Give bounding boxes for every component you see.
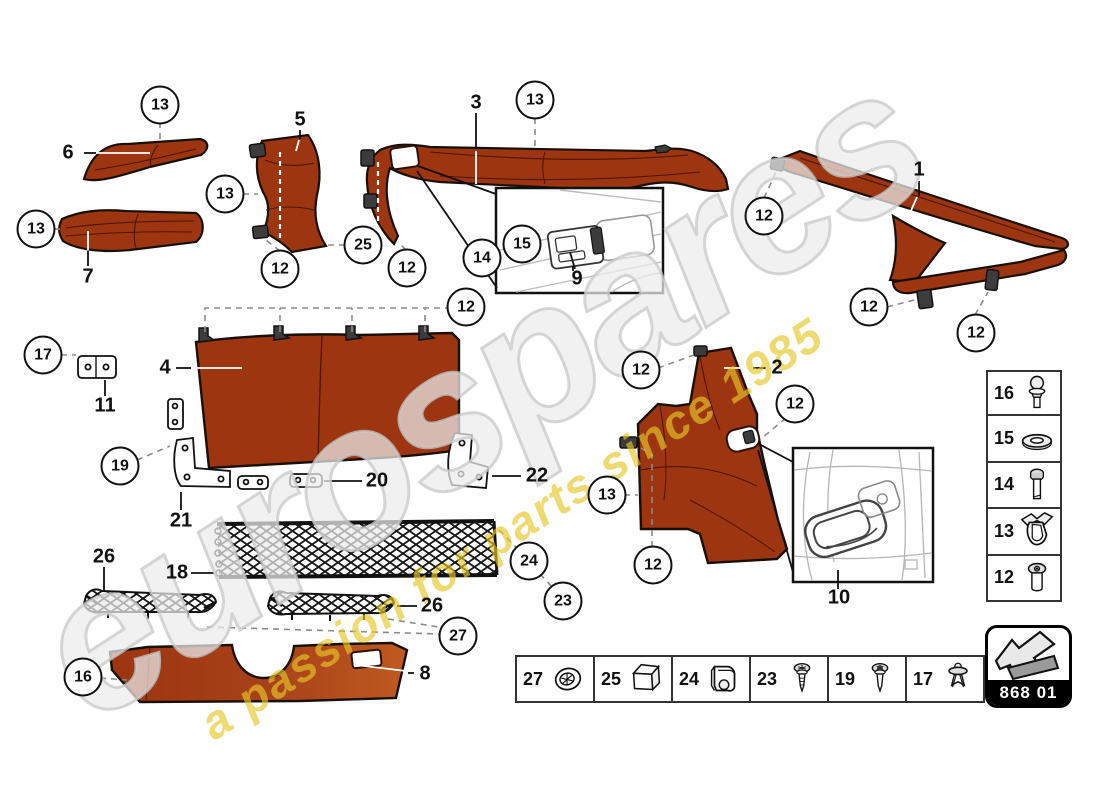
part-number-label: 20 [366, 470, 388, 493]
part-26-net-strip-left [84, 589, 216, 619]
part-5-pillar-trim [249, 135, 326, 252]
round-screw-icon [1014, 557, 1060, 599]
callout-circle: 13 [516, 81, 555, 120]
callout-circle: 27 [439, 617, 478, 656]
lamp-opening [390, 145, 420, 170]
callout-circle: 24 [510, 542, 549, 581]
callout-circle: 12 [447, 288, 486, 327]
part-number-label: 3 [470, 92, 481, 115]
part-26-net-strip-right [268, 591, 394, 621]
callout-circle: 15 [503, 225, 542, 264]
legend-number: 13 [988, 521, 1014, 542]
washer-icon [1014, 418, 1060, 460]
screw-icon [777, 657, 827, 701]
callout-circle: 12 [261, 250, 300, 289]
part-number-label: 21 [170, 510, 192, 533]
callout-circle: 13 [206, 175, 245, 214]
legend-cell-27: 27 [515, 655, 595, 703]
fastener-legend-horizontal: 27 25 24 [515, 655, 985, 703]
bracket-20a [238, 476, 268, 489]
legend-number: 24 [673, 669, 699, 690]
part-4-bulkhead-panel [196, 326, 459, 468]
part-7-roof-trim [59, 210, 203, 251]
legend-cell-25: 25 [593, 655, 673, 703]
legend-number: 16 [988, 383, 1014, 404]
push-rivet-icon [933, 657, 983, 701]
legend-number: 12 [988, 567, 1014, 588]
legend-number: 15 [988, 428, 1014, 449]
legend-cell-24: 24 [671, 655, 751, 703]
bracket-20b [290, 474, 322, 487]
callout-circle: 17 [24, 336, 63, 375]
callout-circle: 13 [141, 86, 180, 125]
part-group-code-badge: 868 01 [985, 625, 1072, 708]
group-code: 868 01 [988, 680, 1069, 705]
callout-circle: 12 [634, 546, 673, 585]
callout-circle: 14 [463, 239, 502, 278]
part-number-label: 9 [571, 268, 582, 291]
group-arrow-icon [988, 628, 1069, 683]
bracket-11 [78, 356, 116, 378]
bracket-22-corner [448, 433, 488, 488]
part-number-label: 22 [526, 465, 548, 488]
part-6-roof-trim [84, 139, 207, 180]
callout-circle: 19 [101, 447, 140, 486]
part-number-label: 5 [294, 109, 305, 132]
part-number-label: 26 [93, 546, 115, 569]
part-number-label: 7 [82, 266, 93, 289]
callout-circle: 16 [64, 658, 103, 697]
parts-diagram-page: eurospares a passion for parts since 198… [0, 0, 1100, 800]
callout-circle: 12 [850, 288, 889, 327]
callout-circle: 12 [957, 314, 996, 353]
legend-cell-13: 13 [986, 507, 1062, 555]
bolt-icon [1014, 464, 1060, 506]
inset-door-handle-detail [793, 448, 933, 589]
fastener-legend-vertical: 16 15 14 [986, 370, 1062, 602]
spring-clip-icon [1014, 510, 1060, 552]
screw-icon [855, 657, 905, 701]
clamp-bracket-icon [699, 657, 749, 701]
legend-cell-12: 12 [986, 554, 1062, 602]
callout-circle: 12 [388, 249, 427, 288]
callout-circle: 12 [622, 351, 661, 390]
legend-cell-23: 23 [749, 655, 829, 703]
callout-circle: 13 [588, 476, 627, 515]
callout-circle: 12 [745, 197, 784, 236]
part-number-label: 1 [913, 159, 924, 182]
part-number-label: 10 [828, 587, 850, 610]
grommet-icon [543, 657, 593, 701]
bracket-small-vertical [168, 399, 183, 429]
part-number-label: 4 [159, 357, 170, 380]
callout-circle: 12 [776, 385, 815, 424]
callout-circle: 23 [544, 582, 583, 621]
legend-cell-14: 14 [986, 461, 1062, 509]
legend-number: 27 [517, 669, 543, 690]
legend-number: 25 [595, 669, 621, 690]
part-8-lower-panel [110, 643, 407, 702]
legend-number: 23 [751, 669, 777, 690]
legend-number: 19 [829, 669, 855, 690]
legend-cell-15: 15 [986, 414, 1062, 462]
part-number-label: 6 [62, 142, 73, 165]
part-number-label: 26 [421, 595, 443, 618]
part-number-label: 11 [94, 395, 115, 418]
callout-circle: 13 [17, 210, 56, 249]
ball-stud-icon [1014, 372, 1060, 414]
legend-cell-17: 17 [905, 655, 985, 703]
callout-circle: 25 [344, 226, 383, 265]
part-number-label: 2 [771, 357, 782, 380]
legend-cell-16: 16 [986, 370, 1062, 416]
part-number-label: 8 [419, 663, 430, 686]
cube-icon [621, 657, 671, 701]
part-number-label: 18 [166, 562, 188, 585]
legend-cell-19: 19 [827, 655, 907, 703]
part-18-luggage-net [215, 521, 497, 577]
legend-number: 14 [988, 474, 1014, 495]
legend-number: 17 [907, 669, 933, 690]
